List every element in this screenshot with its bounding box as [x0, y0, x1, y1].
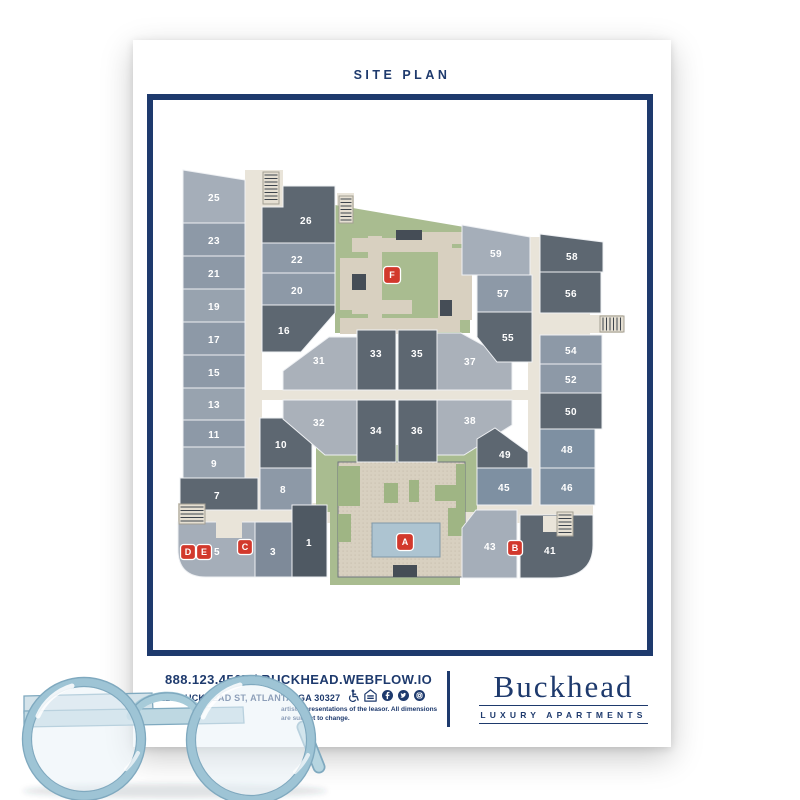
unit-label-46: 46 [561, 483, 573, 494]
unit-label-20: 20 [291, 286, 303, 297]
glasses-highlight [126, 753, 138, 769]
phone-and-website: 888.123.4567 / BUCKHEAD.WEBFLOW.IO [165, 672, 432, 687]
planter [338, 466, 360, 506]
instagram-icon [414, 690, 425, 701]
accessibility-icon [348, 689, 361, 702]
marker-label-B: B [512, 543, 519, 553]
courtyard-structure [440, 300, 452, 316]
logo-rule-top [479, 705, 648, 706]
unit-label-57: 57 [497, 289, 509, 300]
unit-label-36: 36 [411, 426, 423, 437]
logo-wordmark: Buckhead [479, 671, 648, 703]
unit-33 [357, 330, 396, 390]
entry-notch [543, 516, 557, 532]
unit-49 [477, 428, 528, 468]
marker-label-F: F [389, 270, 395, 280]
courtyard-path [438, 238, 452, 330]
unit-label-34: 34 [370, 426, 382, 437]
unit-label-50: 50 [565, 407, 577, 418]
planter [338, 514, 351, 542]
unit-label-41: 41 [544, 546, 556, 557]
unit-label-56: 56 [565, 289, 577, 300]
planter [456, 464, 465, 508]
logo-tagline: LUXURY APARTMENTS [479, 710, 648, 720]
unit-label-45: 45 [498, 483, 510, 494]
unit-label-55: 55 [502, 333, 514, 344]
unit-label-48: 48 [561, 445, 573, 456]
unit-label-21: 21 [208, 269, 220, 280]
unit-label-31: 31 [313, 356, 325, 367]
marker-label-D: D [185, 547, 192, 557]
unit-label-22: 22 [291, 255, 303, 266]
unit-label-26: 26 [300, 216, 312, 227]
courtyard-path [352, 300, 412, 314]
unit-35 [398, 330, 437, 390]
unit-label-8: 8 [280, 485, 286, 496]
disclaimer-line-2: are subject to change. [281, 714, 511, 723]
unit-label-16: 16 [278, 326, 290, 337]
unit-label-52: 52 [565, 375, 577, 386]
road [245, 390, 538, 400]
site-plan-map: 2523211917151311972622201610813531333537… [154, 101, 646, 649]
unit-label-49: 49 [499, 450, 511, 461]
glasses-shadow [23, 784, 327, 798]
disclaimer-line-1: artist representations of the leasor. Al… [281, 705, 511, 714]
unit-label-19: 19 [208, 302, 220, 313]
unit-label-5: 5 [214, 547, 220, 558]
unit-label-3: 3 [270, 547, 276, 558]
unit-label-1: 1 [306, 538, 312, 549]
courtyard-structure [352, 274, 366, 290]
page-title: SITE PLAN [133, 68, 671, 82]
marker-label-C: C [242, 542, 249, 552]
site-plan-sheet: SITE PLAN 252321191715131197262220161081… [133, 40, 671, 747]
unit-label-43: 43 [484, 542, 496, 553]
unit-label-59: 59 [490, 249, 502, 260]
twitter-icon [398, 690, 409, 701]
unit-label-11: 11 [208, 430, 220, 441]
road [245, 170, 262, 528]
unit-label-23: 23 [208, 236, 220, 247]
marker-label-A: A [402, 537, 409, 547]
unit-label-54: 54 [565, 346, 577, 357]
unit-label-38: 38 [464, 416, 476, 427]
road [538, 313, 590, 335]
unit-label-33: 33 [370, 349, 382, 360]
legal-disclaimer: artist representations of the leasor. Al… [281, 705, 511, 723]
facebook-icon [382, 690, 393, 701]
footer-icons [348, 689, 425, 702]
unit-label-10: 10 [275, 440, 287, 451]
unit-label-25: 25 [208, 193, 220, 204]
planter [409, 480, 419, 502]
logo-rule-bottom [479, 723, 648, 724]
address-line: 123 BUCKHEAD ST, ATLANTA, GA 30327 [160, 693, 340, 703]
unit-label-9: 9 [211, 459, 217, 470]
footer-divider [447, 671, 450, 727]
pool-structure [393, 565, 417, 577]
glasses-rim-left-outer [23, 678, 146, 800]
unit-label-7: 7 [214, 491, 220, 502]
glasses-rim-left-inner [32, 687, 137, 792]
equal-housing-icon [364, 689, 377, 702]
marker-label-E: E [201, 547, 207, 557]
glasses-lens-left [27, 682, 141, 796]
unit-label-13: 13 [208, 400, 220, 411]
unit-label-17: 17 [208, 335, 220, 346]
unit-label-35: 35 [411, 349, 423, 360]
unit-label-37: 37 [464, 357, 476, 368]
unit-label-32: 32 [313, 418, 325, 429]
unit-label-58: 58 [566, 252, 578, 263]
glasses-highlight [295, 755, 308, 772]
entry-notch [216, 521, 242, 538]
brand-logo: Buckhead LUXURY APARTMENTS [479, 671, 648, 724]
unit-label-15: 15 [208, 368, 220, 379]
planter [384, 483, 398, 503]
glasses-highlight [38, 686, 72, 716]
courtyard-structure [396, 230, 422, 240]
